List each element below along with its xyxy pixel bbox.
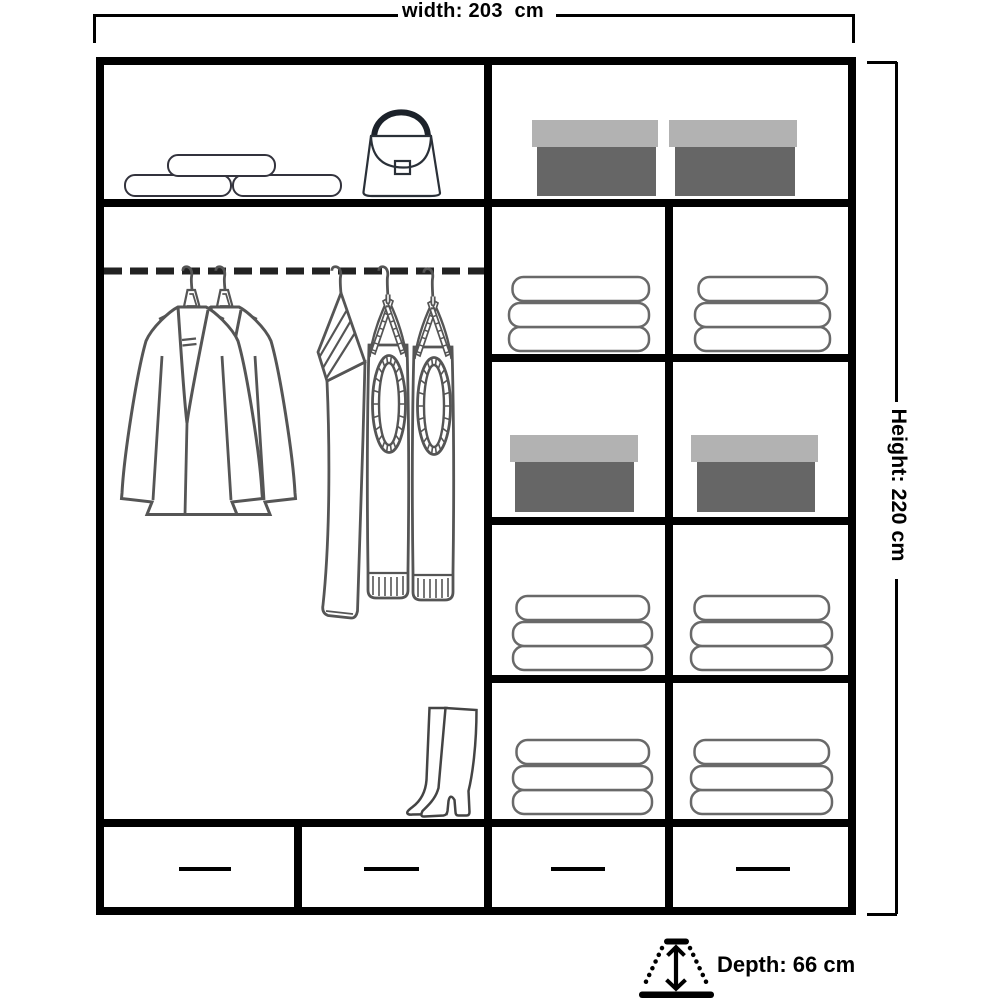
svg-text:width: 203 cm: width: 203 cm bbox=[401, 0, 544, 22]
svg-text:Height: 220 cm: Height: 220 cm bbox=[887, 409, 911, 562]
svg-text:Depth: 66 cm: Depth: 66 cm bbox=[717, 952, 855, 977]
